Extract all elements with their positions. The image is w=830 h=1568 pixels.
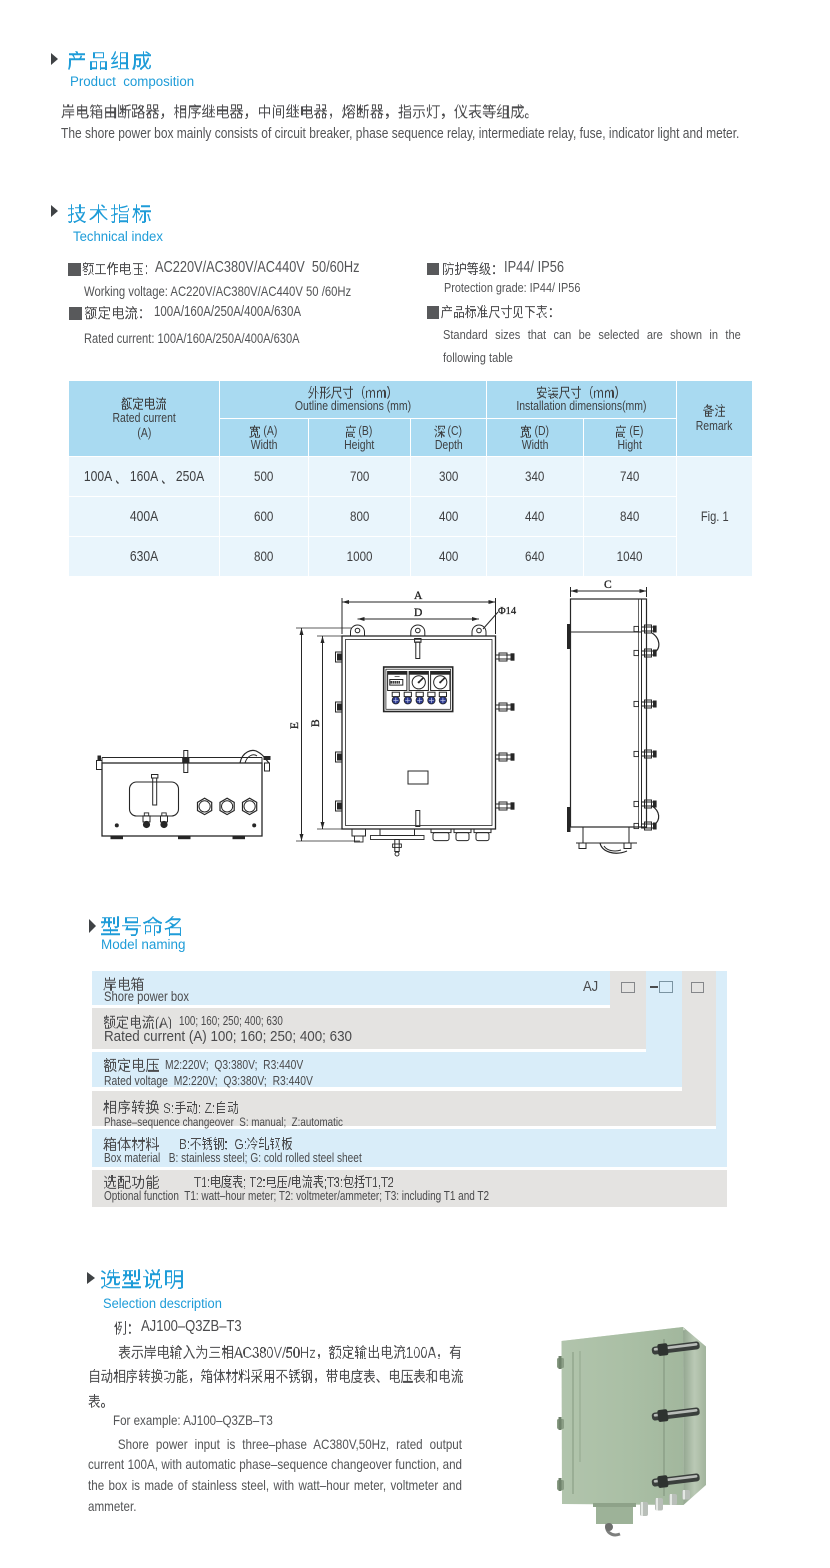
- svg-text:B: B: [310, 719, 322, 727]
- svg-text:E: E: [289, 722, 301, 729]
- svg-text:A: A: [414, 590, 423, 602]
- svg-text:Φ14: Φ14: [498, 606, 517, 617]
- svg-text:D: D: [414, 607, 422, 619]
- svg-text:C: C: [604, 579, 612, 591]
